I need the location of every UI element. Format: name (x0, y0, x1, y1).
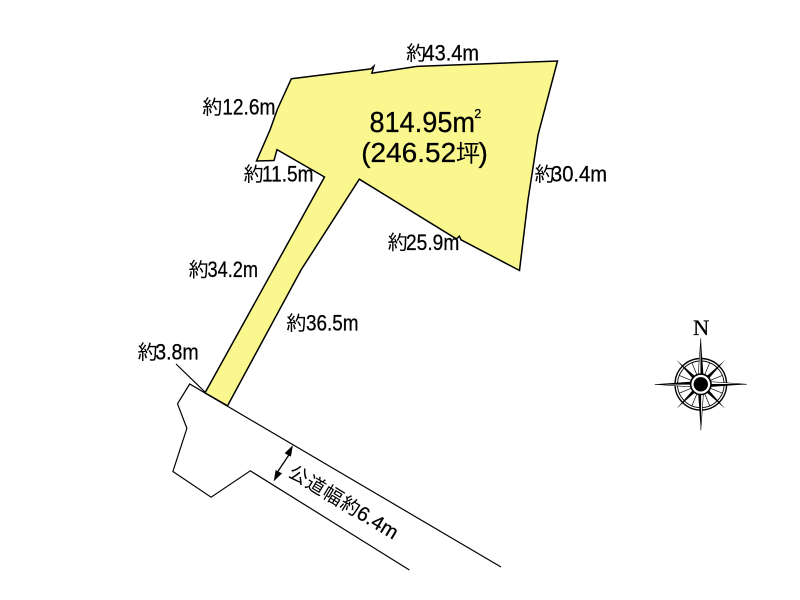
svg-text:N: N (693, 315, 709, 340)
svg-text:11.5m: 11.5m (262, 162, 314, 187)
svg-text:3.8m: 3.8m (155, 340, 199, 365)
svg-text:30.4m: 30.4m (551, 162, 607, 187)
svg-text:34.2m: 34.2m (208, 257, 259, 282)
svg-text:): ) (479, 137, 488, 168)
svg-text:2: 2 (474, 107, 481, 121)
svg-text:36.5m: 36.5m (306, 311, 359, 336)
svg-text:25.9m: 25.9m (406, 230, 459, 255)
svg-text:12.6m: 12.6m (222, 95, 275, 120)
svg-text:6.4m: 6.4m (353, 502, 402, 544)
svg-text:43.4m: 43.4m (424, 41, 480, 66)
svg-text:(246.52: (246.52 (361, 137, 456, 168)
svg-text:814.95m: 814.95m (370, 107, 476, 139)
